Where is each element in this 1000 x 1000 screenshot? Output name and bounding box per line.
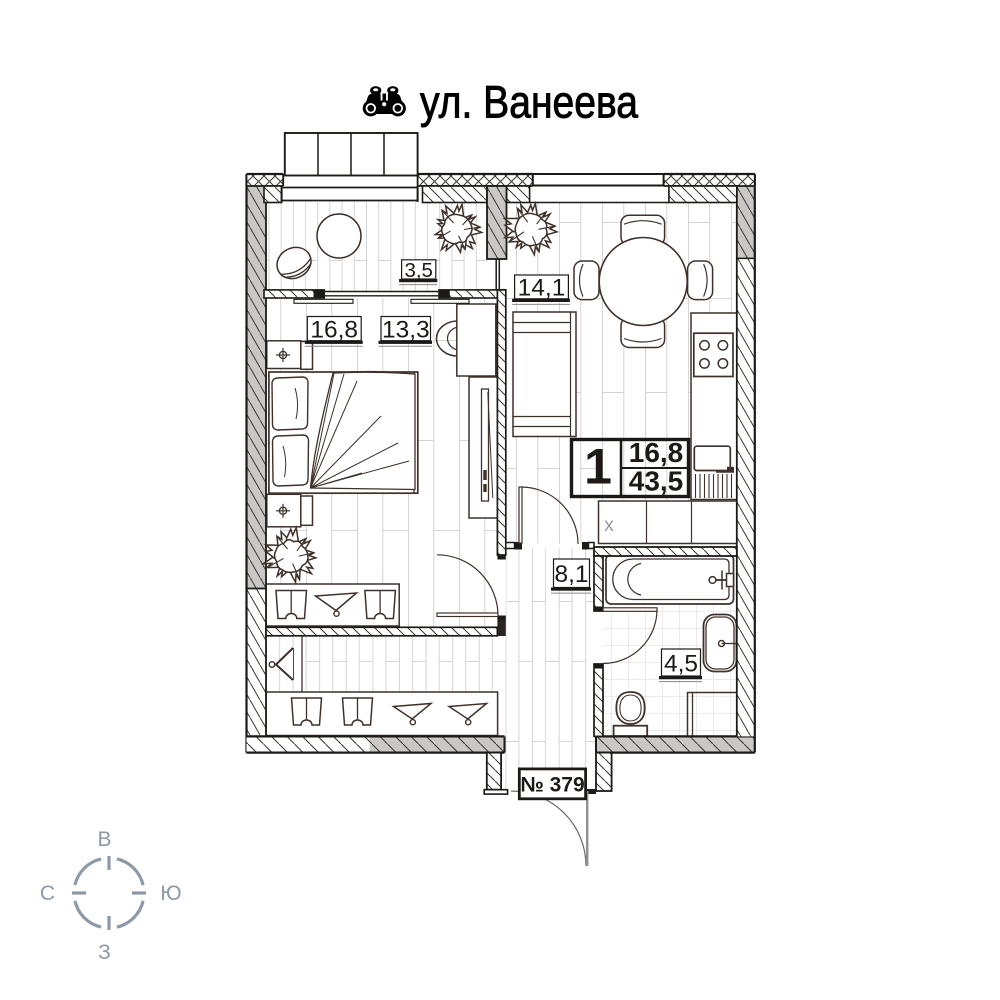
svg-text:1: 1 xyxy=(584,439,612,495)
svg-text:С: С xyxy=(40,882,55,905)
svg-text:3,5: 3,5 xyxy=(404,259,433,282)
svg-text:16,8: 16,8 xyxy=(629,437,684,468)
svg-text:4,5: 4,5 xyxy=(664,650,698,677)
svg-text:16,8: 16,8 xyxy=(310,316,358,343)
svg-text:З: З xyxy=(98,941,111,964)
svg-text:43,5: 43,5 xyxy=(629,466,684,497)
svg-text:Ю: Ю xyxy=(160,882,181,905)
svg-text:x: x xyxy=(604,515,614,536)
svg-text:14,1: 14,1 xyxy=(518,275,566,302)
svg-text:В: В xyxy=(97,828,111,851)
svg-text:№ 379: № 379 xyxy=(520,774,584,797)
svg-text:13,3: 13,3 xyxy=(382,316,430,343)
svg-text:8,1: 8,1 xyxy=(554,561,588,588)
svg-text:ул. Ванеева: ул. Ванеева xyxy=(420,77,639,128)
